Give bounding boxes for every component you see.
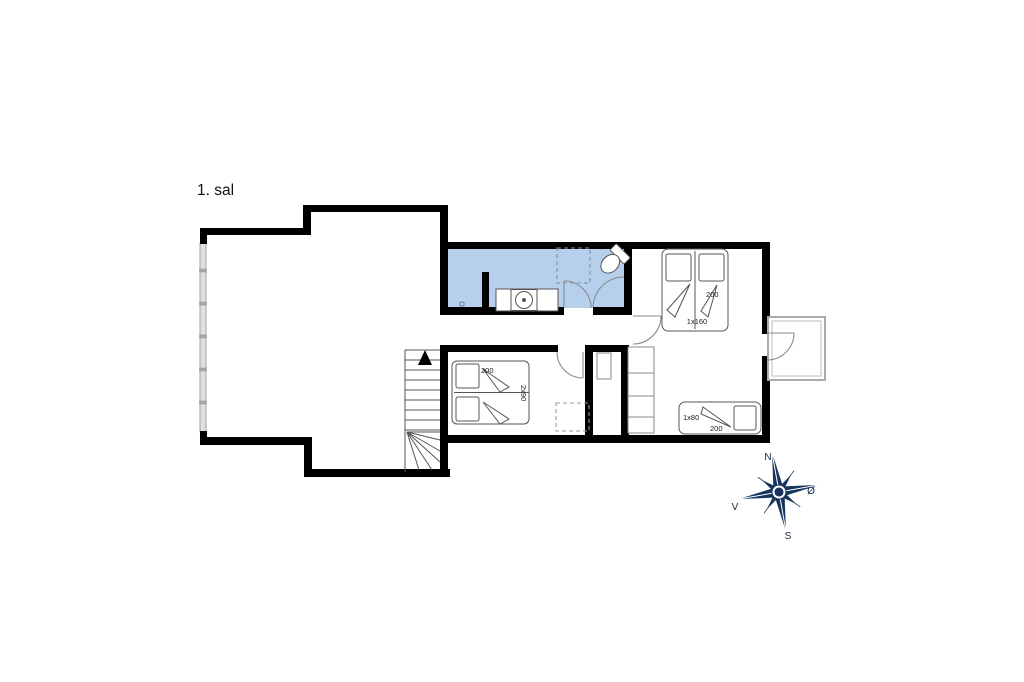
bed-size-label: 2x90 — [519, 385, 528, 401]
compass-label-north: N — [764, 452, 771, 463]
window-wall — [200, 243, 207, 432]
balcony — [767, 317, 825, 380]
stair-winders — [407, 432, 440, 470]
wall-segment — [303, 205, 448, 212]
wall-segment — [440, 242, 770, 249]
bedroom-middle-door-icon — [557, 352, 583, 378]
shelf-unit — [597, 353, 611, 379]
pillow — [456, 397, 479, 421]
pillow — [699, 254, 724, 281]
single-bed: 1x80 200 — [679, 402, 761, 434]
floor-title: 1. sal — [197, 182, 234, 199]
twin-beds: 200 2x90 — [452, 361, 529, 424]
wall-segment — [440, 435, 770, 443]
bedroom-east-door-icon — [633, 316, 661, 344]
walls — [200, 205, 770, 477]
balcony-railing — [768, 317, 825, 380]
staircase — [405, 350, 440, 472]
stairs-up-arrow-icon — [418, 350, 432, 365]
compass-label-west: V — [732, 502, 739, 513]
bathroom-partition-wall — [482, 272, 489, 312]
bed-size-label: 1x80 — [683, 413, 699, 422]
bedroom-middle: 200 2x90 — [452, 352, 589, 431]
double-bed: 200 1x160 — [662, 249, 728, 331]
bed-length-label: 200 — [710, 424, 723, 433]
wall-segment — [440, 345, 448, 476]
wall-segment — [440, 205, 448, 315]
wardrobe — [628, 347, 654, 433]
bed-size-label: 1x160 — [687, 317, 707, 326]
bed-width-label: 200 — [481, 366, 494, 375]
pillow — [666, 254, 691, 281]
wall-segment — [442, 345, 558, 352]
floor-plan-page: 1. sal — [0, 0, 1024, 682]
pillow — [734, 406, 756, 430]
compass-label-south: S — [785, 531, 792, 542]
floor-opening-dashed — [556, 403, 589, 431]
compass-rose: N Ø S V — [732, 445, 827, 542]
compass-label-east: Ø — [807, 486, 815, 497]
stair-treads — [405, 360, 440, 430]
wall-segment — [200, 431, 207, 445]
wall-segment — [200, 228, 207, 244]
wall-segment — [304, 469, 450, 477]
wall-segment — [200, 437, 312, 445]
sink-icon — [511, 290, 537, 311]
floor-plan-canvas: 1. sal — [0, 0, 1024, 682]
pillow — [456, 364, 479, 388]
wall-segment — [200, 228, 310, 235]
bed-width-label: 200 — [706, 290, 719, 299]
